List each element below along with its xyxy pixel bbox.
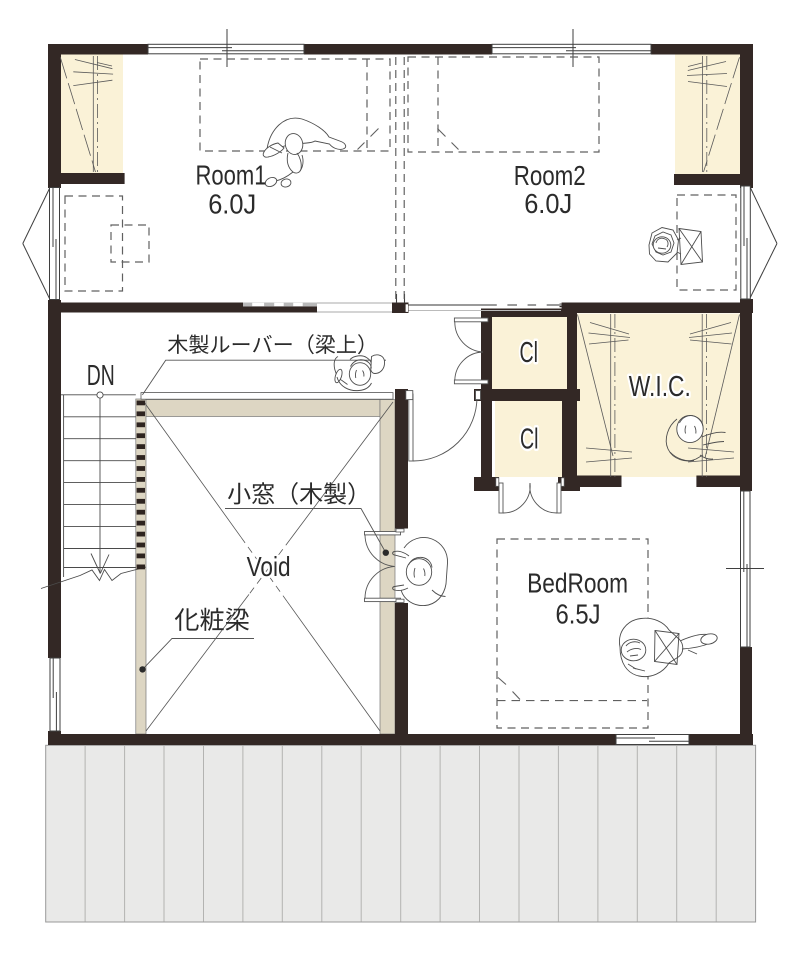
svg-text:DN: DN xyxy=(87,360,115,392)
svg-text:Cl: Cl xyxy=(520,424,539,456)
svg-text:BedRoom: BedRoom xyxy=(527,568,628,599)
svg-text:6.0J: 6.0J xyxy=(208,188,256,219)
svg-text:Room2: Room2 xyxy=(514,160,586,191)
svg-text:W.I.C.: W.I.C. xyxy=(629,371,691,403)
svg-text:6.5J: 6.5J xyxy=(556,599,601,630)
svg-text:6.0J: 6.0J xyxy=(524,188,572,219)
svg-text:Void: Void xyxy=(247,551,291,582)
svg-text:Room1: Room1 xyxy=(196,160,267,191)
svg-text:Cl: Cl xyxy=(519,337,538,369)
